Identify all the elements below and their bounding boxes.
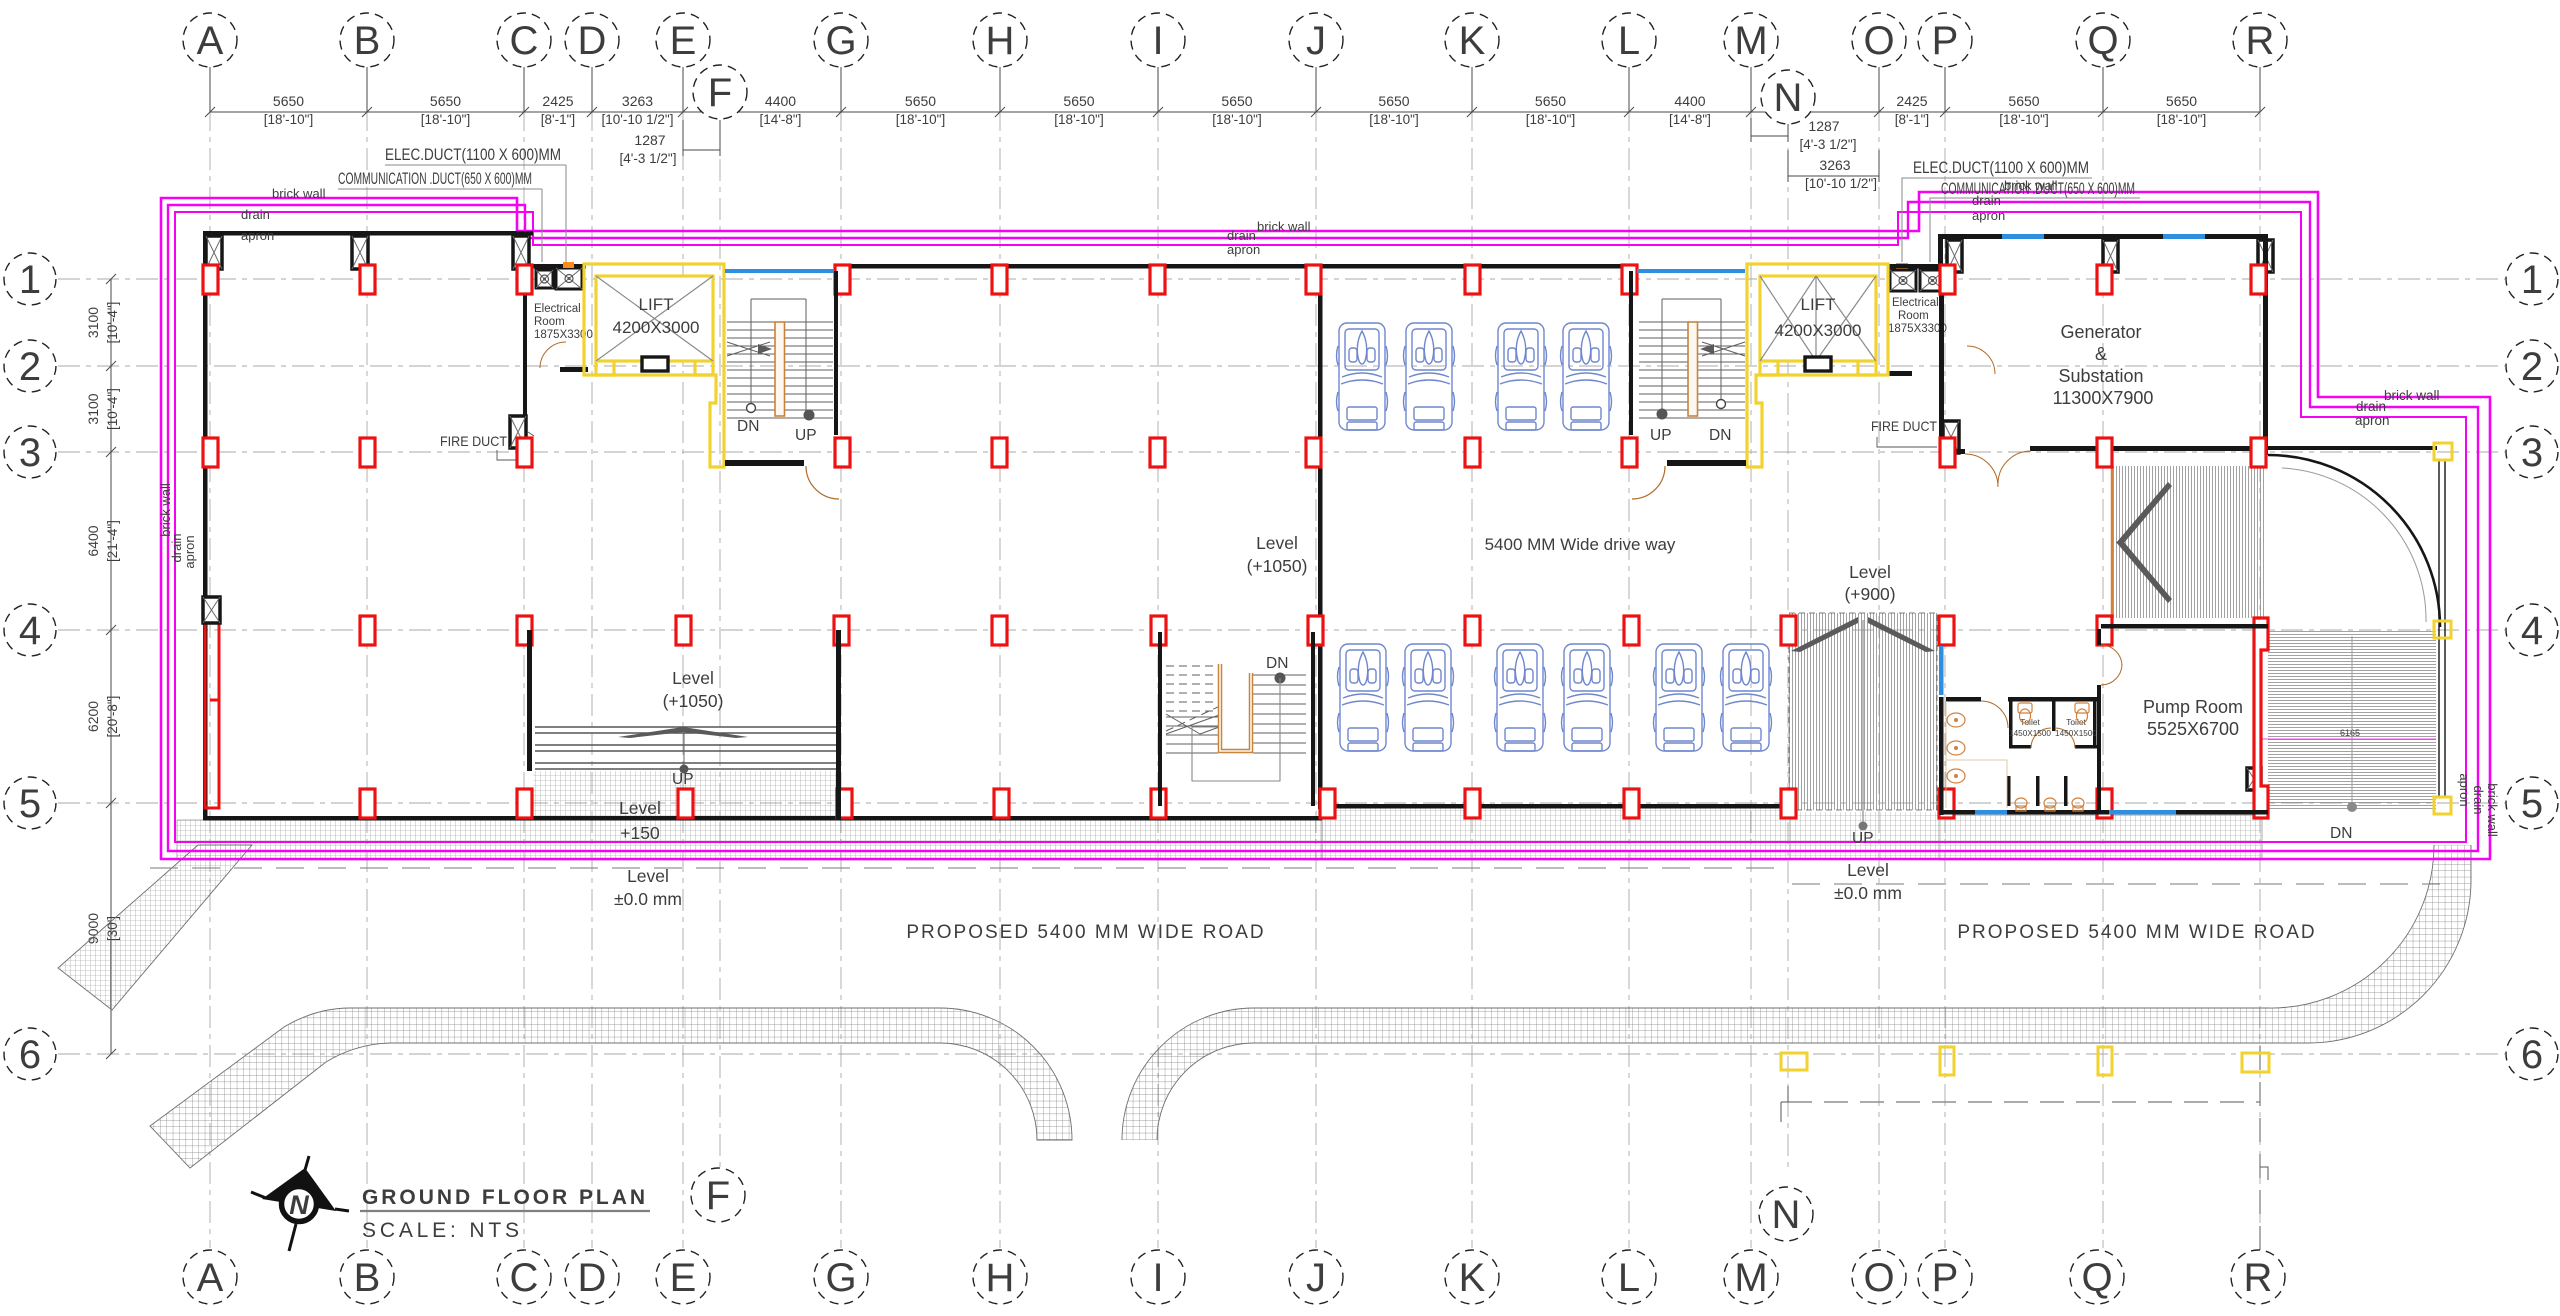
svg-text:K: K bbox=[1459, 1256, 1486, 1300]
svg-text:apron: apron bbox=[2457, 773, 2472, 806]
svg-text:[18'-10"]: [18'-10"] bbox=[1054, 112, 1103, 127]
svg-text:M: M bbox=[1734, 1256, 1767, 1300]
svg-text:brick wall: brick wall bbox=[2485, 783, 2500, 837]
svg-text:(+1050): (+1050) bbox=[1247, 556, 1308, 576]
svg-text:F: F bbox=[708, 71, 732, 115]
svg-text:[10'-10 1/2"]: [10'-10 1/2"] bbox=[1805, 176, 1877, 191]
svg-text:UP: UP bbox=[672, 771, 694, 788]
svg-text:3: 3 bbox=[19, 431, 41, 475]
svg-text:4: 4 bbox=[2521, 609, 2543, 653]
svg-text:Electrical: Electrical bbox=[534, 303, 581, 315]
svg-text:&: & bbox=[2095, 344, 2107, 364]
svg-text:[21'-4"]: [21'-4"] bbox=[105, 520, 120, 562]
svg-text:UP: UP bbox=[795, 427, 817, 444]
svg-text:brick wall: brick wall bbox=[2384, 388, 2440, 403]
svg-text:±0.0 mm: ±0.0 mm bbox=[1834, 883, 1902, 903]
svg-text:N: N bbox=[289, 1190, 309, 1220]
svg-text:H: H bbox=[986, 1256, 1015, 1300]
svg-text:(+900): (+900) bbox=[1844, 584, 1895, 604]
svg-text:[18'-10"]: [18'-10"] bbox=[1369, 112, 1418, 127]
svg-text:[18'-10"]: [18'-10"] bbox=[896, 112, 945, 127]
svg-text:FIRE DUCT: FIRE DUCT bbox=[1871, 418, 1937, 434]
svg-text:L: L bbox=[1618, 1256, 1640, 1300]
svg-text:3263: 3263 bbox=[1819, 157, 1850, 173]
svg-text:(+1050): (+1050) bbox=[663, 691, 724, 711]
svg-text:[10'-4"]: [10'-4"] bbox=[105, 302, 120, 344]
svg-text:Q: Q bbox=[2087, 19, 2118, 63]
svg-text:P: P bbox=[1932, 19, 1959, 63]
svg-text:±0.0 mm: ±0.0 mm bbox=[614, 889, 682, 909]
svg-text:5650: 5650 bbox=[1535, 93, 1566, 109]
svg-text:B: B bbox=[354, 1256, 381, 1300]
svg-text:drain: drain bbox=[241, 207, 270, 222]
svg-text:+150: +150 bbox=[620, 823, 660, 843]
svg-text:FIRE DUCT: FIRE DUCT bbox=[440, 433, 507, 449]
svg-text:[18'-10"]: [18'-10"] bbox=[1526, 112, 1575, 127]
svg-text:ELEC.DUCT(1100 X 600)MM: ELEC.DUCT(1100 X 600)MM bbox=[1913, 158, 2089, 177]
svg-text:L: L bbox=[1618, 19, 1640, 63]
svg-text:F: F bbox=[706, 1174, 730, 1218]
svg-text:E: E bbox=[670, 19, 697, 63]
svg-text:5525X6700: 5525X6700 bbox=[2147, 719, 2239, 739]
svg-text:2: 2 bbox=[2521, 345, 2543, 389]
svg-text:3: 3 bbox=[2521, 431, 2543, 475]
svg-text:4: 4 bbox=[19, 609, 41, 653]
svg-text:J: J bbox=[1306, 19, 1326, 63]
svg-text:R: R bbox=[2244, 1256, 2273, 1300]
svg-text:1287: 1287 bbox=[1808, 118, 1839, 134]
svg-text:3263: 3263 bbox=[622, 93, 653, 109]
svg-text:1: 1 bbox=[19, 258, 41, 302]
svg-text:DN: DN bbox=[2330, 825, 2352, 842]
svg-text:Level: Level bbox=[1849, 562, 1891, 582]
svg-text:Level: Level bbox=[627, 866, 669, 886]
svg-text:LIFT: LIFT bbox=[639, 295, 674, 314]
svg-text:J: J bbox=[1306, 1256, 1326, 1300]
svg-text:apron: apron bbox=[1972, 208, 2005, 223]
svg-text:1287: 1287 bbox=[634, 132, 665, 148]
svg-text:P: P bbox=[1932, 1256, 1959, 1300]
svg-text:DN: DN bbox=[737, 418, 759, 435]
svg-text:5650: 5650 bbox=[430, 93, 461, 109]
svg-text:3100: 3100 bbox=[85, 307, 101, 338]
svg-text:A: A bbox=[197, 19, 224, 63]
svg-text:DN: DN bbox=[1709, 427, 1731, 444]
svg-text:3100: 3100 bbox=[85, 393, 101, 424]
svg-text:Level: Level bbox=[1847, 860, 1889, 880]
svg-text:apron: apron bbox=[182, 535, 197, 568]
svg-text:brick wall: brick wall bbox=[272, 186, 326, 201]
svg-text:drain: drain bbox=[1972, 193, 2001, 208]
svg-text:[4'-3 1/2"]: [4'-3 1/2"] bbox=[620, 151, 677, 166]
svg-text:K: K bbox=[1459, 19, 1486, 63]
svg-text:5400 MM Wide drive way: 5400 MM Wide drive way bbox=[1485, 535, 1676, 554]
svg-text:Substation: Substation bbox=[2058, 366, 2143, 386]
svg-text:R: R bbox=[2246, 19, 2275, 63]
svg-text:apron: apron bbox=[1227, 242, 1260, 257]
svg-text:1875X3300: 1875X3300 bbox=[1888, 323, 1947, 335]
svg-text:Pump Room: Pump Room bbox=[2143, 697, 2243, 717]
svg-text:5650: 5650 bbox=[2166, 93, 2197, 109]
svg-text:6400: 6400 bbox=[85, 525, 101, 556]
svg-text:drain: drain bbox=[2471, 786, 2486, 815]
svg-text:Q: Q bbox=[2081, 1256, 2112, 1300]
svg-text:[20'-8"]: [20'-8"] bbox=[105, 696, 120, 738]
svg-text:O: O bbox=[1863, 1256, 1894, 1300]
svg-text:Room: Room bbox=[534, 316, 565, 328]
svg-text:B: B bbox=[354, 19, 381, 63]
svg-text:2425: 2425 bbox=[542, 93, 573, 109]
svg-text:GROUND FLOOR PLAN: GROUND FLOOR PLAN bbox=[362, 1186, 645, 1209]
svg-text:brick wall: brick wall bbox=[1257, 219, 1311, 234]
svg-text:5650: 5650 bbox=[1378, 93, 1409, 109]
svg-text:H: H bbox=[986, 19, 1015, 63]
svg-text:[4'-3 1/2"]: [4'-3 1/2"] bbox=[1800, 137, 1857, 152]
svg-text:M: M bbox=[1734, 19, 1767, 63]
svg-text:5650: 5650 bbox=[2008, 93, 2039, 109]
svg-text:Room: Room bbox=[1898, 310, 1929, 322]
svg-text:5: 5 bbox=[2521, 782, 2543, 826]
svg-text:[18'-10"]: [18'-10"] bbox=[1999, 112, 2048, 127]
svg-text:apron: apron bbox=[241, 228, 274, 243]
svg-text:5650: 5650 bbox=[1221, 93, 1252, 109]
svg-text:5650: 5650 bbox=[905, 93, 936, 109]
svg-text:1: 1 bbox=[2521, 258, 2543, 302]
svg-text:drain: drain bbox=[2356, 399, 2386, 414]
svg-text:Level: Level bbox=[1256, 533, 1298, 553]
svg-text:[10'-10 1/2"]: [10'-10 1/2"] bbox=[602, 112, 674, 127]
svg-text:A: A bbox=[197, 1256, 224, 1300]
svg-text:[18'-10"]: [18'-10"] bbox=[264, 112, 313, 127]
svg-text:UP: UP bbox=[1650, 427, 1672, 444]
svg-text:[14'-8"]: [14'-8"] bbox=[760, 112, 802, 127]
svg-text:brick wall: brick wall bbox=[2004, 178, 2058, 193]
svg-text:LIFT: LIFT bbox=[1801, 295, 1836, 314]
svg-text:1450X1500: 1450X1500 bbox=[2009, 728, 2051, 738]
svg-text:6: 6 bbox=[2521, 1033, 2543, 1077]
svg-text:[8'-1"]: [8'-1"] bbox=[541, 112, 575, 127]
svg-text:C: C bbox=[510, 1256, 539, 1300]
svg-text:6200: 6200 bbox=[85, 701, 101, 732]
svg-text:Level: Level bbox=[619, 798, 661, 818]
svg-text:1450X1500: 1450X1500 bbox=[2055, 728, 2097, 738]
svg-text:5650: 5650 bbox=[1063, 93, 1094, 109]
svg-text:ELEC.DUCT(1100 X 600)MM: ELEC.DUCT(1100 X 600)MM bbox=[385, 145, 561, 164]
svg-text:D: D bbox=[578, 1256, 607, 1300]
svg-text:I: I bbox=[1152, 1256, 1163, 1300]
svg-text:[8'-1"]: [8'-1"] bbox=[1895, 112, 1929, 127]
svg-text:[14'-8"]: [14'-8"] bbox=[1669, 112, 1711, 127]
svg-text:PROPOSED 5400 MM WIDE ROAD: PROPOSED 5400 MM WIDE ROAD bbox=[906, 922, 1265, 943]
svg-text:PROPOSED 5400 MM WIDE ROAD: PROPOSED 5400 MM WIDE ROAD bbox=[1957, 922, 2316, 943]
svg-text:D: D bbox=[578, 19, 607, 63]
svg-text:O: O bbox=[1863, 19, 1894, 63]
svg-text:Electrical: Electrical bbox=[1892, 297, 1939, 309]
svg-text:[18'-10"]: [18'-10"] bbox=[2157, 112, 2206, 127]
svg-text:G: G bbox=[825, 19, 856, 63]
svg-text:Level: Level bbox=[672, 668, 714, 688]
svg-text:SCALE: NTS: SCALE: NTS bbox=[362, 1219, 519, 1242]
svg-text:4200X3000: 4200X3000 bbox=[613, 318, 700, 337]
svg-text:E: E bbox=[670, 1256, 697, 1300]
svg-text:DN: DN bbox=[1266, 655, 1288, 672]
svg-text:[10'-4"]: [10'-4"] bbox=[105, 388, 120, 430]
svg-text:6: 6 bbox=[19, 1033, 41, 1077]
svg-text:4200X3000: 4200X3000 bbox=[1775, 321, 1862, 340]
svg-text:2: 2 bbox=[19, 345, 41, 389]
svg-text:N: N bbox=[1774, 76, 1803, 120]
svg-text:COMMUNICATION .DUCT(650 X 600): COMMUNICATION .DUCT(650 X 600)MM bbox=[338, 169, 532, 188]
svg-text:[18'-10"]: [18'-10"] bbox=[421, 112, 470, 127]
svg-text:C: C bbox=[510, 19, 539, 63]
svg-text:brick wall: brick wall bbox=[158, 483, 173, 537]
svg-text:4400: 4400 bbox=[765, 93, 796, 109]
svg-text:2425: 2425 bbox=[1896, 93, 1927, 109]
svg-text:6165: 6165 bbox=[2340, 728, 2360, 738]
svg-text:I: I bbox=[1152, 19, 1163, 63]
svg-text:Generator: Generator bbox=[2060, 322, 2141, 342]
svg-text:UP: UP bbox=[1852, 830, 1874, 847]
svg-text:apron: apron bbox=[2355, 413, 2390, 428]
svg-text:11300X7900: 11300X7900 bbox=[2053, 388, 2154, 408]
svg-text:5650: 5650 bbox=[273, 93, 304, 109]
svg-text:5: 5 bbox=[19, 782, 41, 826]
svg-text:N: N bbox=[1772, 1193, 1801, 1237]
svg-text:[18'-10"]: [18'-10"] bbox=[1212, 112, 1261, 127]
svg-text:4400: 4400 bbox=[1674, 93, 1705, 109]
svg-text:drain: drain bbox=[1227, 228, 1256, 243]
svg-text:G: G bbox=[825, 1256, 856, 1300]
